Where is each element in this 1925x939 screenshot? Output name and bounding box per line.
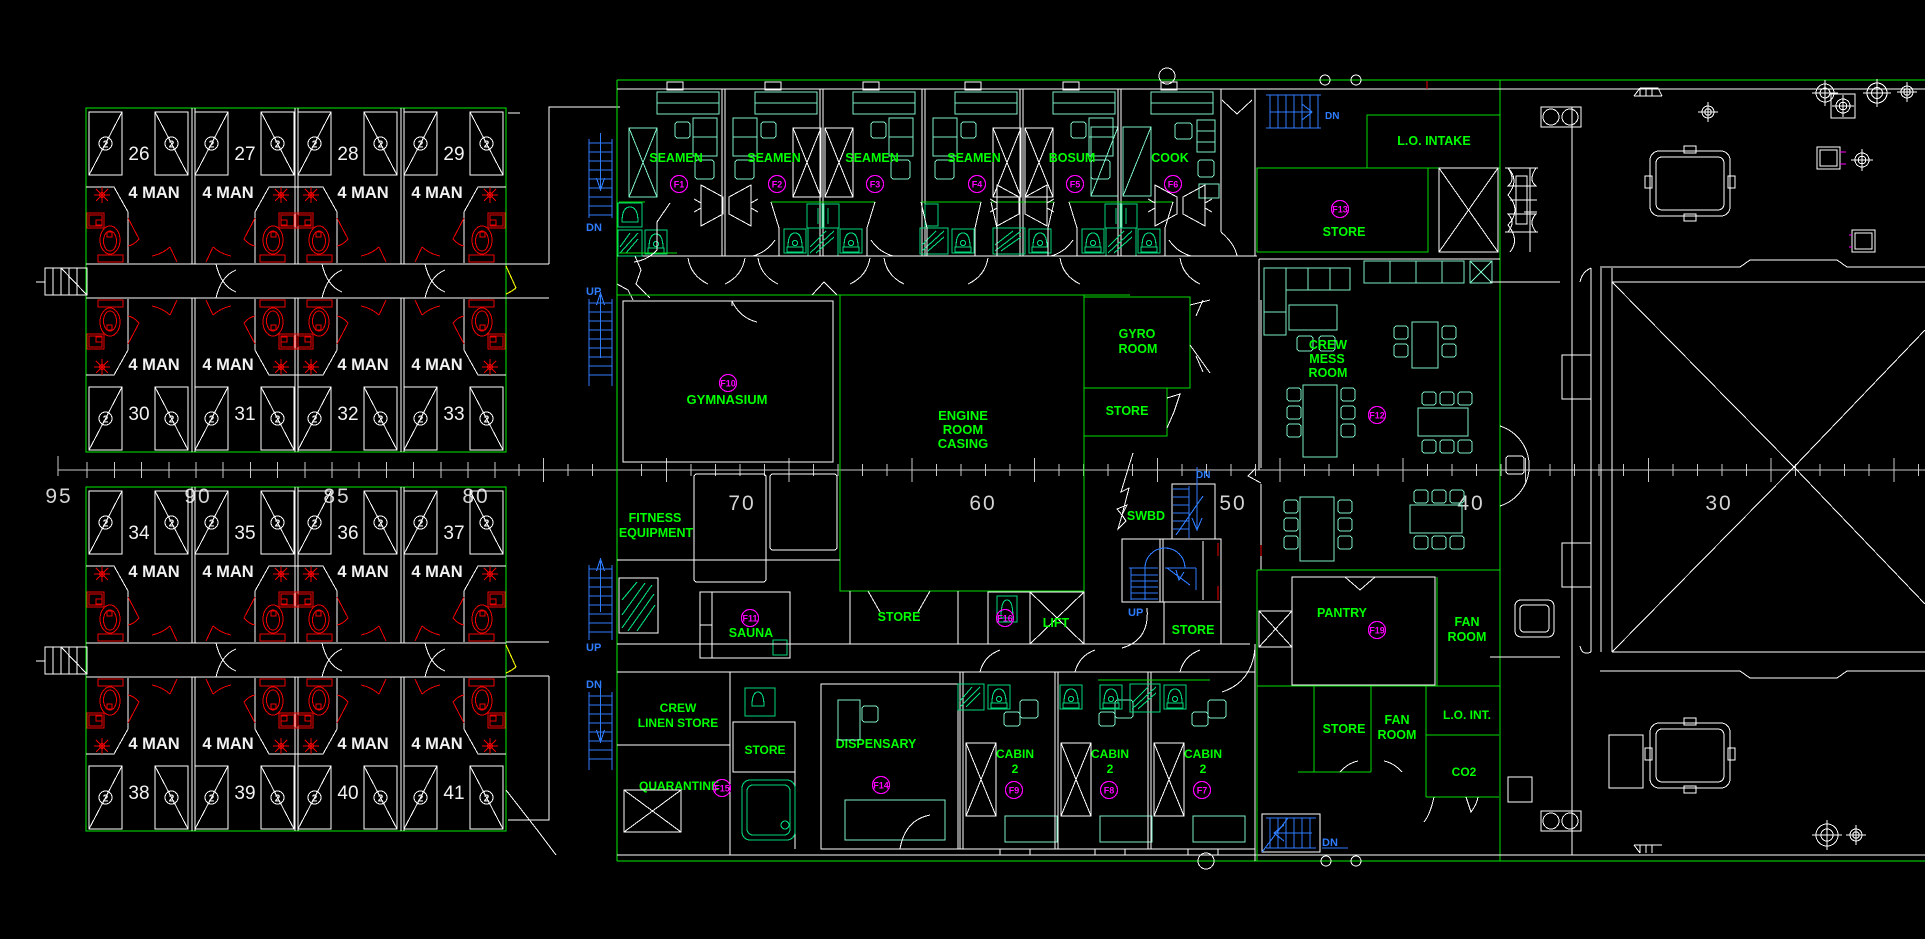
svg-text:85: 85	[323, 485, 350, 508]
svg-text:27: 27	[234, 144, 255, 165]
svg-text:4 MAN: 4 MAN	[337, 184, 388, 202]
svg-text:30: 30	[128, 404, 149, 425]
svg-text:LINEN STORE: LINEN STORE	[638, 716, 718, 730]
svg-text:2: 2	[418, 794, 424, 805]
svg-text:F7: F7	[1197, 786, 1208, 796]
svg-text:L.O. INT.: L.O. INT.	[1443, 708, 1491, 722]
svg-text:SEAMEN: SEAMEN	[649, 151, 702, 165]
svg-text:F11: F11	[742, 614, 757, 624]
svg-text:DN: DN	[1196, 470, 1210, 481]
svg-text:2: 2	[418, 519, 424, 530]
svg-text:30: 30	[1705, 492, 1732, 515]
svg-text:ROOM: ROOM	[1309, 366, 1348, 380]
svg-text:ROOM: ROOM	[1448, 630, 1487, 644]
svg-text:SWBD: SWBD	[1127, 509, 1165, 523]
svg-text:FAN: FAN	[1455, 615, 1480, 629]
svg-text:SEAMEN: SEAMEN	[845, 151, 898, 165]
svg-text:CREW: CREW	[1309, 338, 1347, 352]
svg-text:2: 2	[378, 415, 384, 426]
svg-text:F6: F6	[1168, 180, 1179, 190]
svg-text:95: 95	[45, 485, 72, 508]
svg-text:4 MAN: 4 MAN	[411, 563, 462, 581]
svg-text:4 MAN: 4 MAN	[202, 356, 253, 374]
svg-text:40: 40	[337, 783, 358, 804]
svg-text:ROOM: ROOM	[943, 422, 983, 437]
svg-text:2: 2	[209, 794, 215, 805]
svg-text:4 MAN: 4 MAN	[128, 184, 179, 202]
svg-text:2: 2	[1200, 762, 1207, 776]
svg-text:4 MAN: 4 MAN	[128, 563, 179, 581]
svg-text:GYMNASIUM: GYMNASIUM	[687, 392, 768, 407]
svg-text:UP: UP	[586, 642, 601, 654]
svg-text:2: 2	[312, 794, 318, 805]
svg-text:F10: F10	[720, 379, 736, 389]
svg-text:DISPENSARY: DISPENSARY	[836, 737, 917, 751]
svg-text:STORE: STORE	[1106, 404, 1149, 418]
svg-text:EQUIPMENT: EQUIPMENT	[619, 526, 694, 540]
svg-text:SEAMEN: SEAMEN	[747, 151, 800, 165]
svg-text:FITNESS: FITNESS	[629, 511, 682, 525]
svg-text:FAN: FAN	[1385, 713, 1410, 727]
svg-text:2: 2	[484, 519, 490, 530]
svg-text:4 MAN: 4 MAN	[128, 735, 179, 753]
svg-text:STORE: STORE	[1323, 722, 1366, 736]
svg-text:37: 37	[443, 523, 464, 544]
svg-text:2: 2	[169, 794, 175, 805]
svg-text:50: 50	[1219, 492, 1246, 515]
svg-text:CABIN: CABIN	[996, 747, 1034, 761]
svg-text:F12: F12	[1369, 411, 1385, 421]
svg-text:STORE: STORE	[878, 610, 921, 624]
svg-text:2: 2	[312, 415, 318, 426]
svg-text:2: 2	[312, 140, 318, 151]
svg-text:2: 2	[209, 519, 215, 530]
svg-text:COOK: COOK	[1151, 151, 1189, 165]
svg-text:2: 2	[209, 415, 215, 426]
svg-text:F8: F8	[1104, 786, 1115, 796]
svg-text:2: 2	[169, 519, 175, 530]
svg-text:2: 2	[103, 415, 109, 426]
svg-text:4 MAN: 4 MAN	[202, 184, 253, 202]
svg-text:F14: F14	[873, 781, 889, 791]
svg-text:2: 2	[484, 794, 490, 805]
svg-text:F9: F9	[1009, 786, 1020, 796]
svg-text:26: 26	[128, 144, 149, 165]
svg-text:SEAMEN: SEAMEN	[947, 151, 1000, 165]
svg-text:F3: F3	[870, 180, 881, 190]
svg-text:40: 40	[1457, 492, 1484, 515]
svg-text:31: 31	[234, 404, 255, 425]
svg-text:UP: UP	[1128, 607, 1143, 619]
svg-text:4 MAN: 4 MAN	[202, 735, 253, 753]
svg-text:CASING: CASING	[938, 436, 989, 451]
svg-text:60: 60	[969, 492, 996, 515]
svg-text:F5: F5	[1070, 180, 1081, 190]
svg-text:33: 33	[443, 404, 464, 425]
svg-text:STORE: STORE	[1172, 623, 1215, 637]
svg-text:2: 2	[418, 140, 424, 151]
svg-text:4 MAN: 4 MAN	[411, 184, 462, 202]
svg-text:2: 2	[418, 415, 424, 426]
svg-text:F2: F2	[772, 180, 783, 190]
svg-text:DN: DN	[586, 679, 602, 691]
svg-text:2: 2	[484, 415, 490, 426]
svg-text:CABIN: CABIN	[1091, 747, 1129, 761]
svg-text:MESS: MESS	[1309, 352, 1344, 366]
svg-text:DN: DN	[1325, 111, 1339, 122]
svg-text:F1: F1	[674, 180, 685, 190]
svg-text:29: 29	[443, 144, 464, 165]
svg-text:2: 2	[169, 140, 175, 151]
svg-text:4 MAN: 4 MAN	[337, 735, 388, 753]
svg-text:LIFT: LIFT	[1043, 616, 1070, 630]
svg-text:ROOM: ROOM	[1119, 342, 1158, 356]
svg-text:F19: F19	[1369, 626, 1385, 636]
svg-text:4 MAN: 4 MAN	[337, 563, 388, 581]
svg-text:4 MAN: 4 MAN	[337, 356, 388, 374]
svg-text:41: 41	[443, 783, 464, 804]
svg-text:CABIN: CABIN	[1184, 747, 1222, 761]
svg-text:2: 2	[169, 415, 175, 426]
svg-text:2: 2	[378, 794, 384, 805]
svg-text:39: 39	[234, 783, 255, 804]
svg-text:38: 38	[128, 783, 149, 804]
svg-text:ROOM: ROOM	[1378, 728, 1417, 742]
svg-text:PANTRY: PANTRY	[1317, 606, 1368, 620]
svg-text:2: 2	[103, 140, 109, 151]
svg-text:ENGINE: ENGINE	[938, 408, 988, 423]
svg-text:STORE: STORE	[744, 743, 785, 757]
svg-text:2: 2	[275, 415, 281, 426]
svg-text:2: 2	[275, 794, 281, 805]
svg-text:28: 28	[337, 144, 358, 165]
svg-text:2: 2	[378, 140, 384, 151]
svg-text:35: 35	[234, 523, 255, 544]
svg-text:2: 2	[312, 519, 318, 530]
svg-text:2: 2	[209, 140, 215, 151]
svg-text:SAUNA: SAUNA	[729, 626, 773, 640]
svg-text:L.O. INTAKE: L.O. INTAKE	[1397, 134, 1470, 148]
svg-text:4 MAN: 4 MAN	[202, 563, 253, 581]
svg-text:2: 2	[378, 519, 384, 530]
svg-text:36: 36	[337, 523, 358, 544]
svg-text:STORE: STORE	[1323, 225, 1366, 239]
svg-text:F4: F4	[972, 180, 983, 190]
svg-text:34: 34	[128, 523, 150, 544]
svg-text:70: 70	[728, 492, 755, 515]
svg-text:DN: DN	[586, 222, 602, 234]
svg-text:F15: F15	[714, 784, 730, 794]
svg-text:2: 2	[103, 794, 109, 805]
svg-text:80: 80	[462, 485, 489, 508]
svg-text:2: 2	[1012, 762, 1019, 776]
svg-text:BOSUM: BOSUM	[1049, 151, 1096, 165]
svg-text:4 MAN: 4 MAN	[411, 735, 462, 753]
svg-text:GYRO: GYRO	[1119, 327, 1156, 341]
svg-text:2: 2	[1107, 762, 1114, 776]
svg-text:F13: F13	[1332, 205, 1348, 215]
svg-text:CREW: CREW	[660, 701, 697, 715]
svg-text:2: 2	[484, 140, 490, 151]
svg-text:DN: DN	[1322, 837, 1338, 849]
svg-text:4 MAN: 4 MAN	[128, 356, 179, 374]
svg-text:32: 32	[337, 404, 358, 425]
svg-text:4 MAN: 4 MAN	[411, 356, 462, 374]
svg-text:2: 2	[103, 519, 109, 530]
svg-text:2: 2	[275, 140, 281, 151]
svg-text:2: 2	[275, 519, 281, 530]
svg-text:CO2: CO2	[1452, 765, 1477, 779]
svg-text:UP: UP	[586, 286, 601, 298]
svg-text:F16: F16	[997, 614, 1013, 624]
